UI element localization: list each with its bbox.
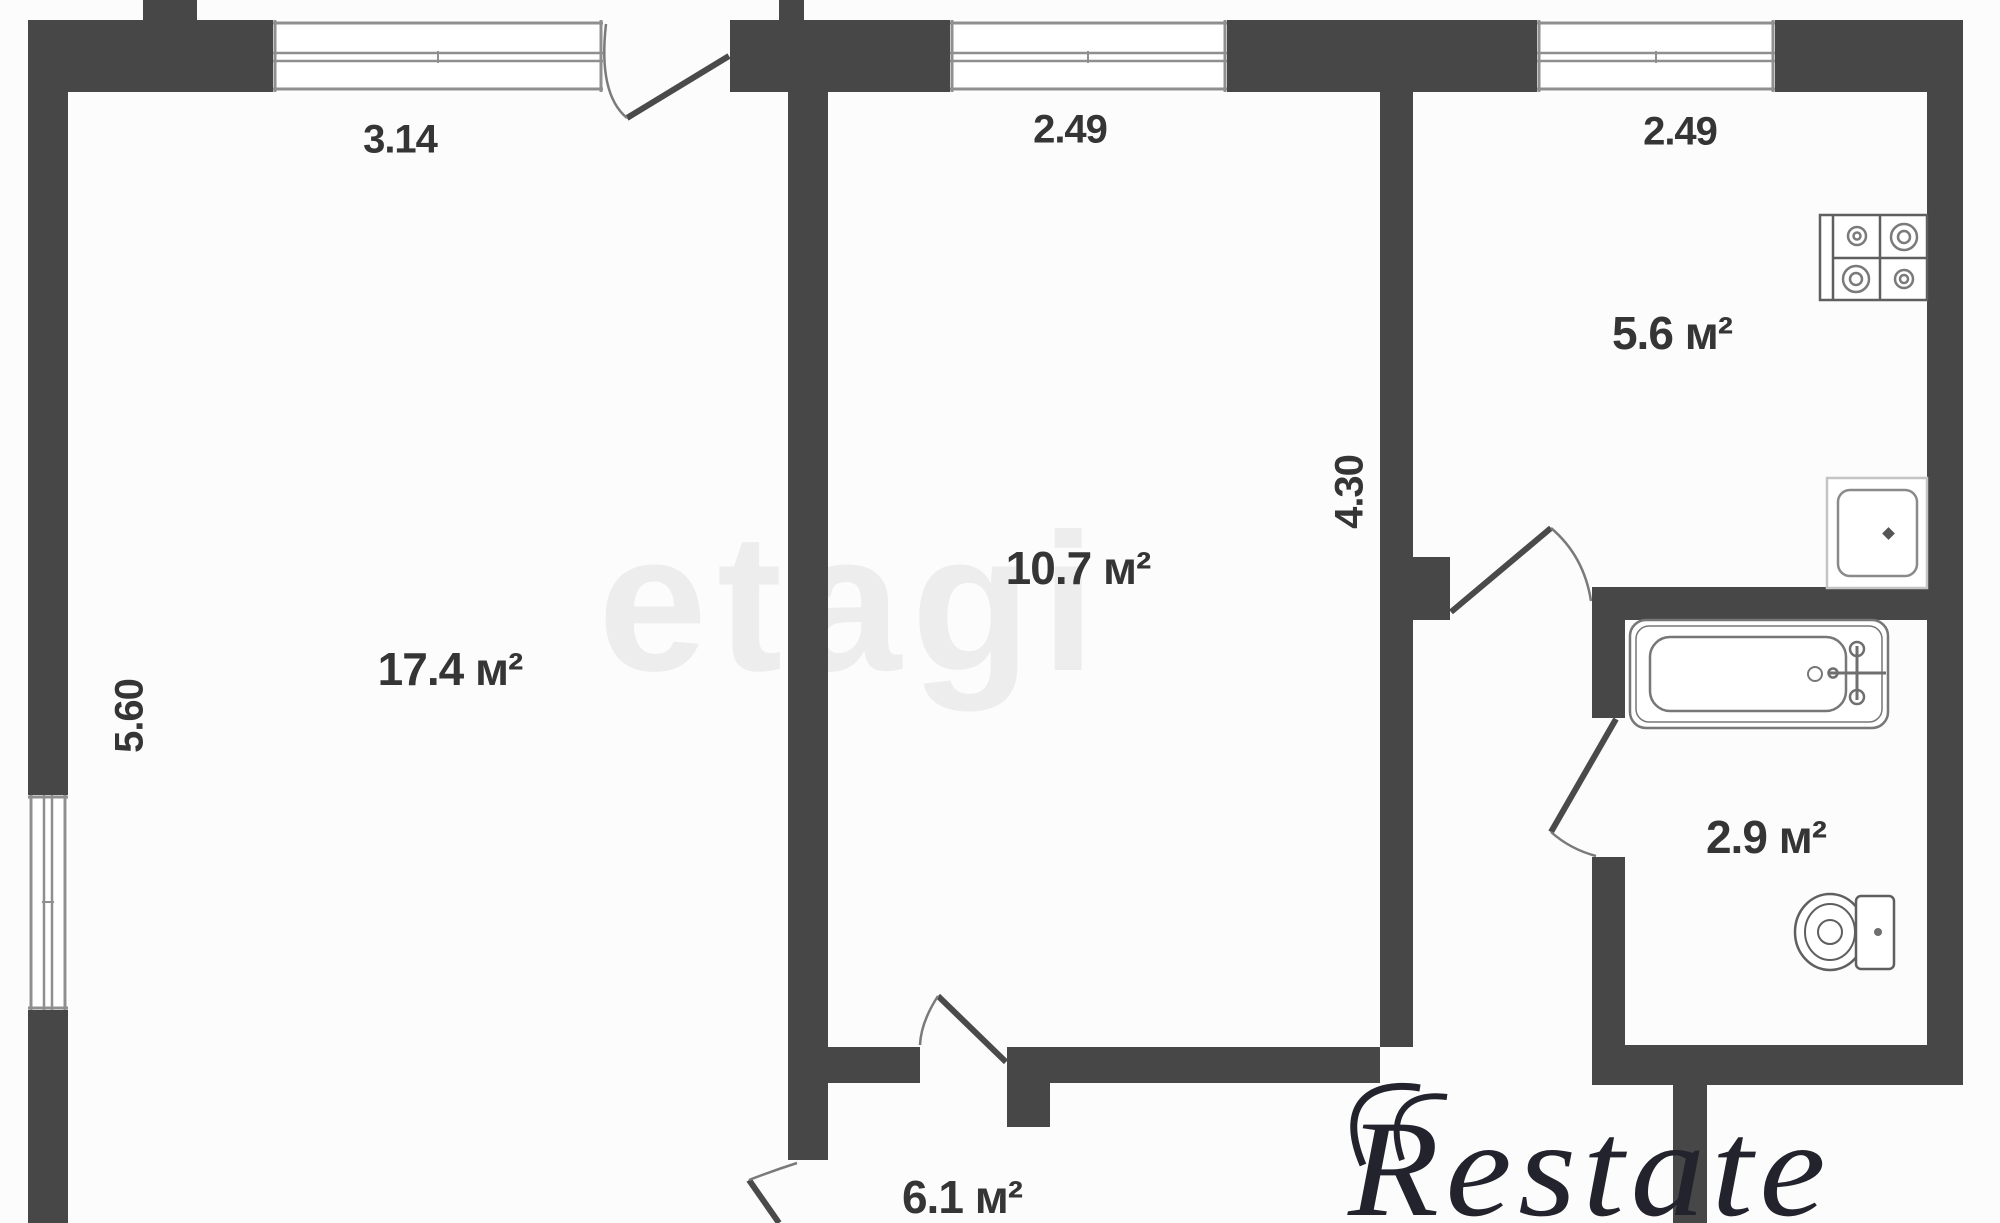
door-jamb-kitchen xyxy=(1413,557,1450,620)
wall-bedroom-bottom-left xyxy=(828,1047,920,1083)
dim-bedroom-width: 2.49 xyxy=(1033,108,1107,153)
wall-bathroom-left-upper xyxy=(1592,620,1625,718)
bathroom-door-swing xyxy=(1551,719,1616,856)
label-living-room-area: 17.4 м² xyxy=(378,642,523,696)
wall-bedroom-bottom-right xyxy=(1007,1047,1380,1083)
living-room-window xyxy=(273,20,603,92)
wall-right xyxy=(1927,20,1963,1085)
living-room-door-swing xyxy=(749,1163,797,1223)
walls xyxy=(28,0,1963,1223)
balcony-stub-mid xyxy=(779,0,804,22)
label-kitchen-area: 5.6 м² xyxy=(1612,306,1732,360)
bedroom-window xyxy=(950,20,1227,92)
dim-living-room-depth: 5.60 xyxy=(108,679,153,753)
wall-top-mid xyxy=(730,20,950,92)
dim-living-room-width: 3.14 xyxy=(363,118,437,163)
kitchen-sink xyxy=(1827,478,1927,588)
label-hallway-area: 6.1 м² xyxy=(902,1170,1022,1223)
watermark-restate: Restate xyxy=(1348,1100,1832,1223)
bedroom-door-swing xyxy=(920,996,1006,1062)
stove xyxy=(1820,215,1927,300)
label-bedroom-area: 10.7 м² xyxy=(1006,541,1151,595)
kitchen-window xyxy=(1537,20,1775,92)
wall-living-divider xyxy=(788,92,828,1160)
living-room-side-window xyxy=(28,795,68,1010)
floor-plan-drawing xyxy=(0,0,2000,1223)
balcony-door-swing xyxy=(604,24,729,118)
wall-bathroom-left-lower xyxy=(1592,857,1625,1045)
wall-bedroom-divider xyxy=(1380,92,1413,1047)
wall-left-upper xyxy=(28,20,68,795)
pier-bedroom-door xyxy=(1007,1083,1050,1127)
balcony-stub-left xyxy=(143,0,197,22)
floor-plan: etagi xyxy=(0,0,2000,1223)
doors xyxy=(604,24,1616,1223)
dim-kitchen-width: 2.49 xyxy=(1643,110,1717,155)
kitchen-door-swing xyxy=(1451,528,1591,612)
bathtub xyxy=(1630,620,1888,728)
wall-top-right-mid xyxy=(1227,20,1537,92)
wall-kitchen-bath-divider xyxy=(1592,587,1963,620)
dim-bedroom-depth: 4.30 xyxy=(1328,455,1373,529)
wall-left-lower xyxy=(28,1010,68,1223)
toilet xyxy=(1795,894,1894,970)
wall-bathroom-bottom xyxy=(1592,1045,1963,1085)
label-bathroom-area: 2.9 м² xyxy=(1706,810,1826,864)
windows xyxy=(28,20,1775,1010)
